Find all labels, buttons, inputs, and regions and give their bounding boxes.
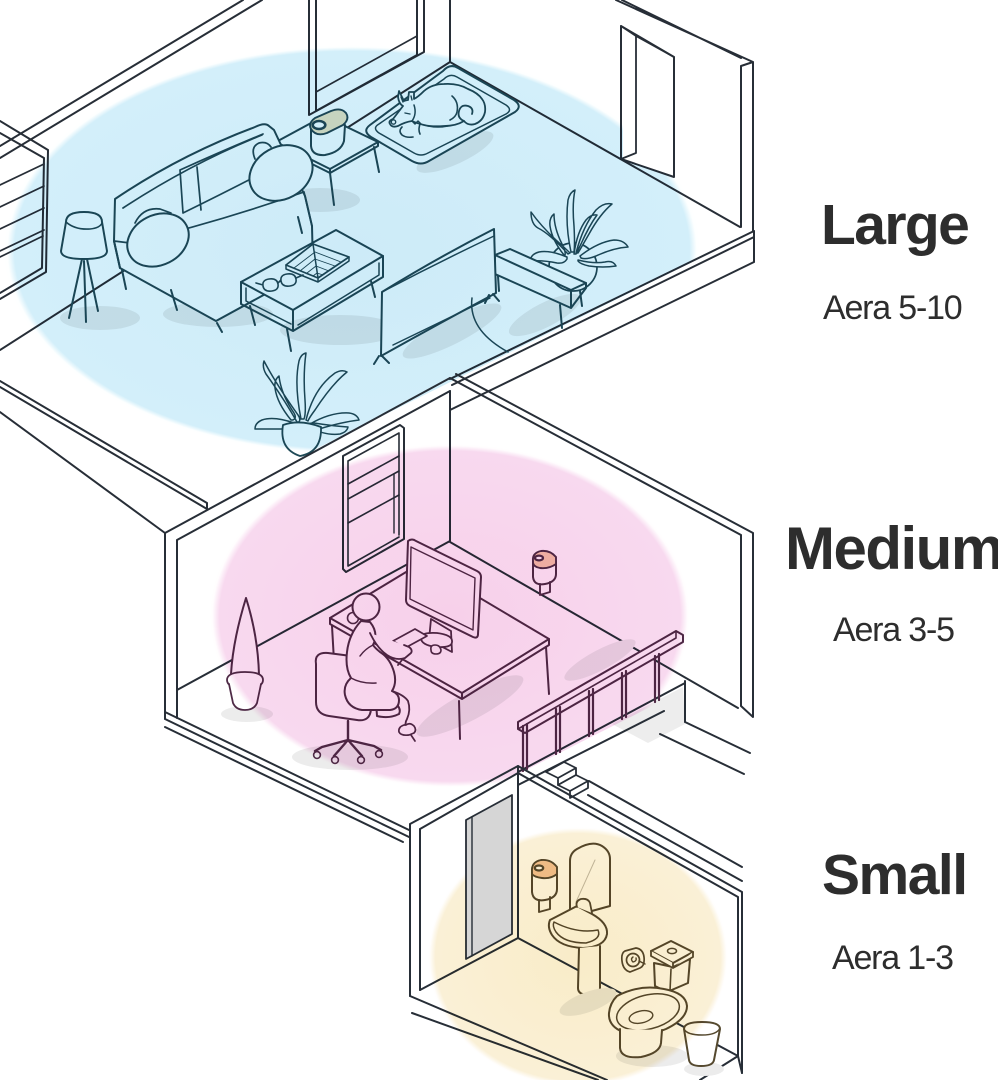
svg-text:Aera 5-10: Aera 5-10 [823, 289, 962, 327]
svg-text:Medium: Medium [785, 515, 998, 582]
svg-text:Small: Small [822, 843, 967, 907]
svg-text:Aera 1-3: Aera 1-3 [832, 939, 953, 977]
svg-text:Aera 3-5: Aera 3-5 [833, 611, 954, 649]
svg-text:Large: Large [821, 193, 968, 257]
